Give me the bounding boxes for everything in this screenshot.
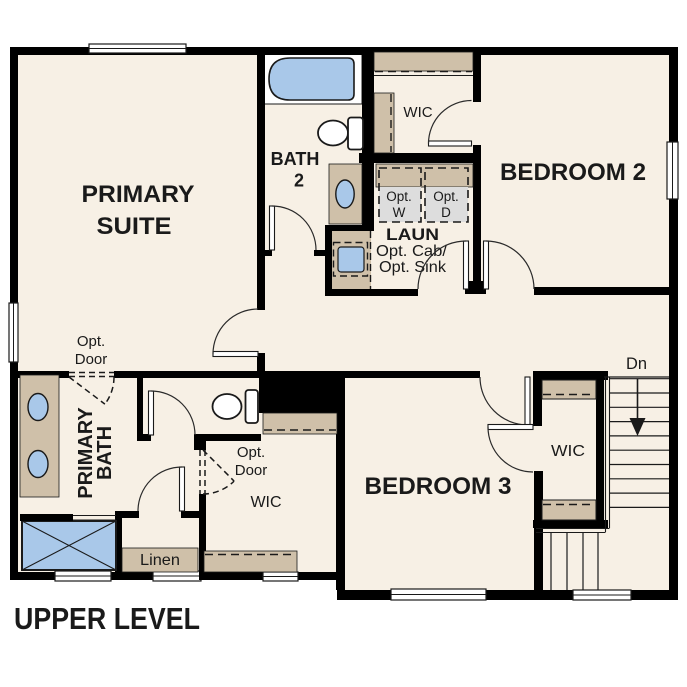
svg-text:PRIMARY: PRIMARY xyxy=(82,181,195,208)
svg-text:2: 2 xyxy=(294,171,304,191)
svg-text:W: W xyxy=(393,205,406,220)
svg-text:BATH: BATH xyxy=(271,149,320,169)
svg-text:BEDROOM 3: BEDROOM 3 xyxy=(365,473,512,500)
svg-text:WIC: WIC xyxy=(551,443,585,460)
svg-text:WIC: WIC xyxy=(250,494,281,511)
svg-text:SUITE: SUITE xyxy=(97,213,172,240)
svg-text:UPPER LEVEL: UPPER LEVEL xyxy=(14,601,200,636)
svg-text:BEDROOM 2: BEDROOM 2 xyxy=(500,159,646,186)
svg-text:Dn: Dn xyxy=(626,355,647,373)
svg-text:Door: Door xyxy=(75,351,108,368)
svg-text:Opt. Sink: Opt. Sink xyxy=(379,259,447,276)
svg-text:Opt.: Opt. xyxy=(433,189,459,204)
svg-text:Linen: Linen xyxy=(140,552,180,569)
svg-text:BATH: BATH xyxy=(94,426,116,480)
svg-text:Opt.: Opt. xyxy=(77,333,105,350)
svg-text:Opt.: Opt. xyxy=(386,189,412,204)
svg-text:Opt.: Opt. xyxy=(237,444,265,461)
svg-text:Door: Door xyxy=(235,462,268,479)
svg-text:D: D xyxy=(441,205,451,220)
svg-text:LAUN: LAUN xyxy=(386,225,439,244)
svg-text:WIC: WIC xyxy=(403,104,432,121)
